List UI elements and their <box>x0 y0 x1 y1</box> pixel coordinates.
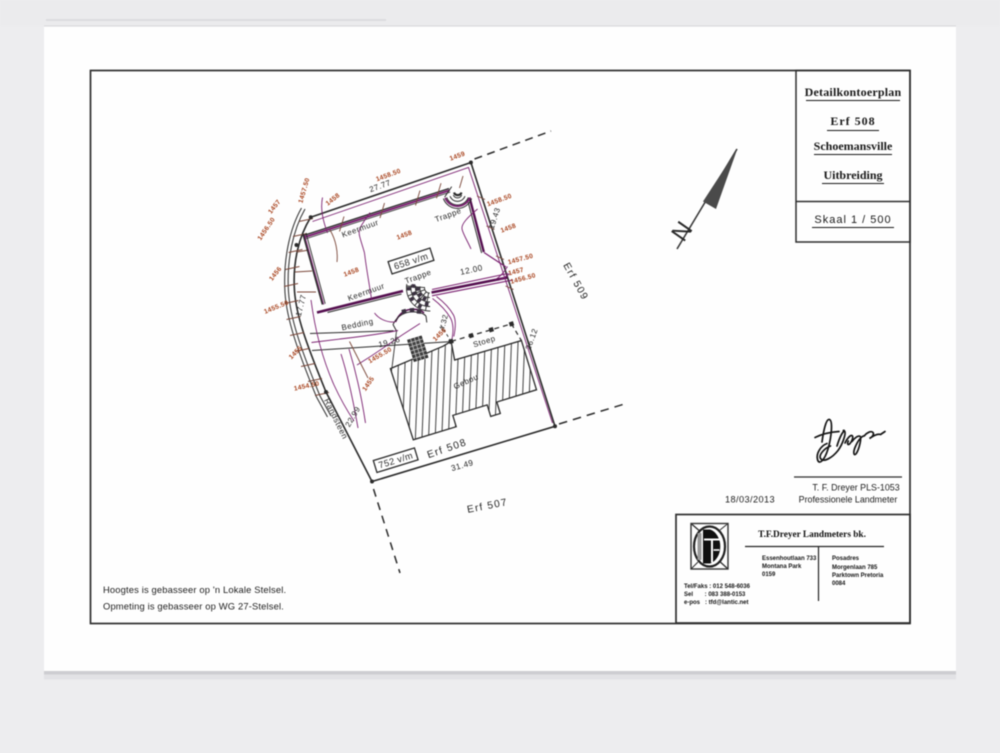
svg-text:e-pos : tfd@lantic.net: e-pos : tfd@lantic.net <box>684 600 749 606</box>
svg-text:Sel : 083 388-0153: Sel : 083 388-0153 <box>684 592 746 598</box>
svg-text:Skaal 1 / 500: Skaal 1 / 500 <box>814 214 891 226</box>
svg-text:0159: 0159 <box>762 572 776 578</box>
svg-text:Professionele Landmeter: Professionele Landmeter <box>799 495 898 505</box>
svg-text:Detailkontoerplan: Detailkontoerplan <box>805 85 902 99</box>
svg-text:Montana Park: Montana Park <box>762 564 802 570</box>
svg-text:Morgenlaan 785: Morgenlaan 785 <box>832 565 878 571</box>
svg-text:Schoemansville: Schoemansville <box>814 139 893 153</box>
svg-text:Parktown Pretoria: Parktown Pretoria <box>832 573 884 579</box>
svg-text:Tel/Faks : 012 548-6036: Tel/Faks : 012 548-6036 <box>684 584 751 590</box>
svg-text:T. F. Dreyer PLS-1053: T. F. Dreyer PLS-1053 <box>812 483 899 493</box>
svg-text:Hoogtes is gebasseer op 'n Lok: Hoogtes is gebasseer op 'n Lokale Stelse… <box>103 584 286 595</box>
svg-text:18/03/2013: 18/03/2013 <box>725 495 775 505</box>
svg-text:Essenhoutlaan 733: Essenhoutlaan 733 <box>762 556 817 562</box>
svg-text:Posadres: Posadres <box>832 556 860 562</box>
svg-text:Opmeting is gebasseer op WG 27: Opmeting is gebasseer op WG 27-Stelsel. <box>103 601 284 612</box>
svg-text:0084: 0084 <box>832 581 846 587</box>
svg-text:Erf 508: Erf 508 <box>830 114 875 128</box>
svg-text:T.F.Dreyer Landmeters bk.: T.F.Dreyer Landmeters bk. <box>758 530 866 540</box>
svg-text:Uitbreiding: Uitbreiding <box>823 168 882 182</box>
